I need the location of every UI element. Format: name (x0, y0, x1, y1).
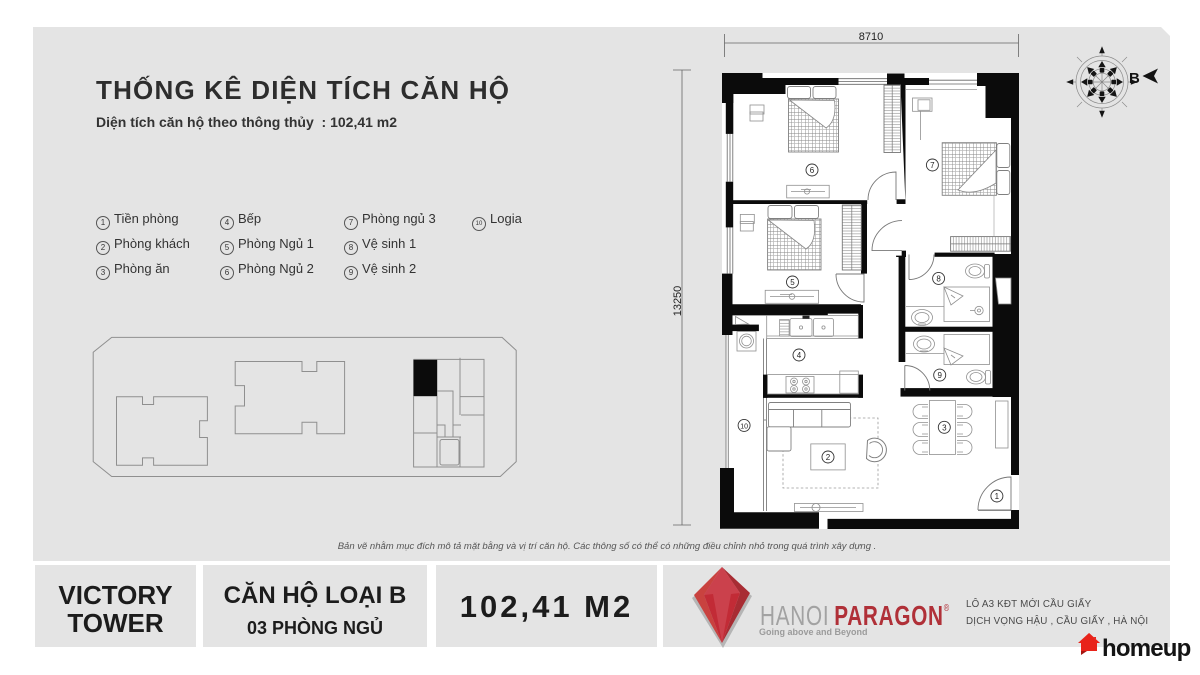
svg-text:13250: 13250 (672, 286, 684, 317)
svg-text:8: 8 (936, 274, 941, 283)
svg-text:10: 10 (740, 423, 748, 430)
svg-text:6: 6 (810, 166, 815, 175)
svg-text:5: 5 (790, 278, 795, 287)
svg-text:3: 3 (942, 423, 947, 432)
svg-text:2: 2 (826, 453, 831, 462)
svg-text:1: 1 (995, 492, 1000, 501)
svg-text:B: B (1129, 70, 1140, 87)
svg-text:9: 9 (937, 371, 942, 380)
svg-text:4: 4 (797, 351, 802, 360)
svg-text:8710: 8710 (859, 31, 883, 43)
svg-text:7: 7 (930, 161, 935, 170)
